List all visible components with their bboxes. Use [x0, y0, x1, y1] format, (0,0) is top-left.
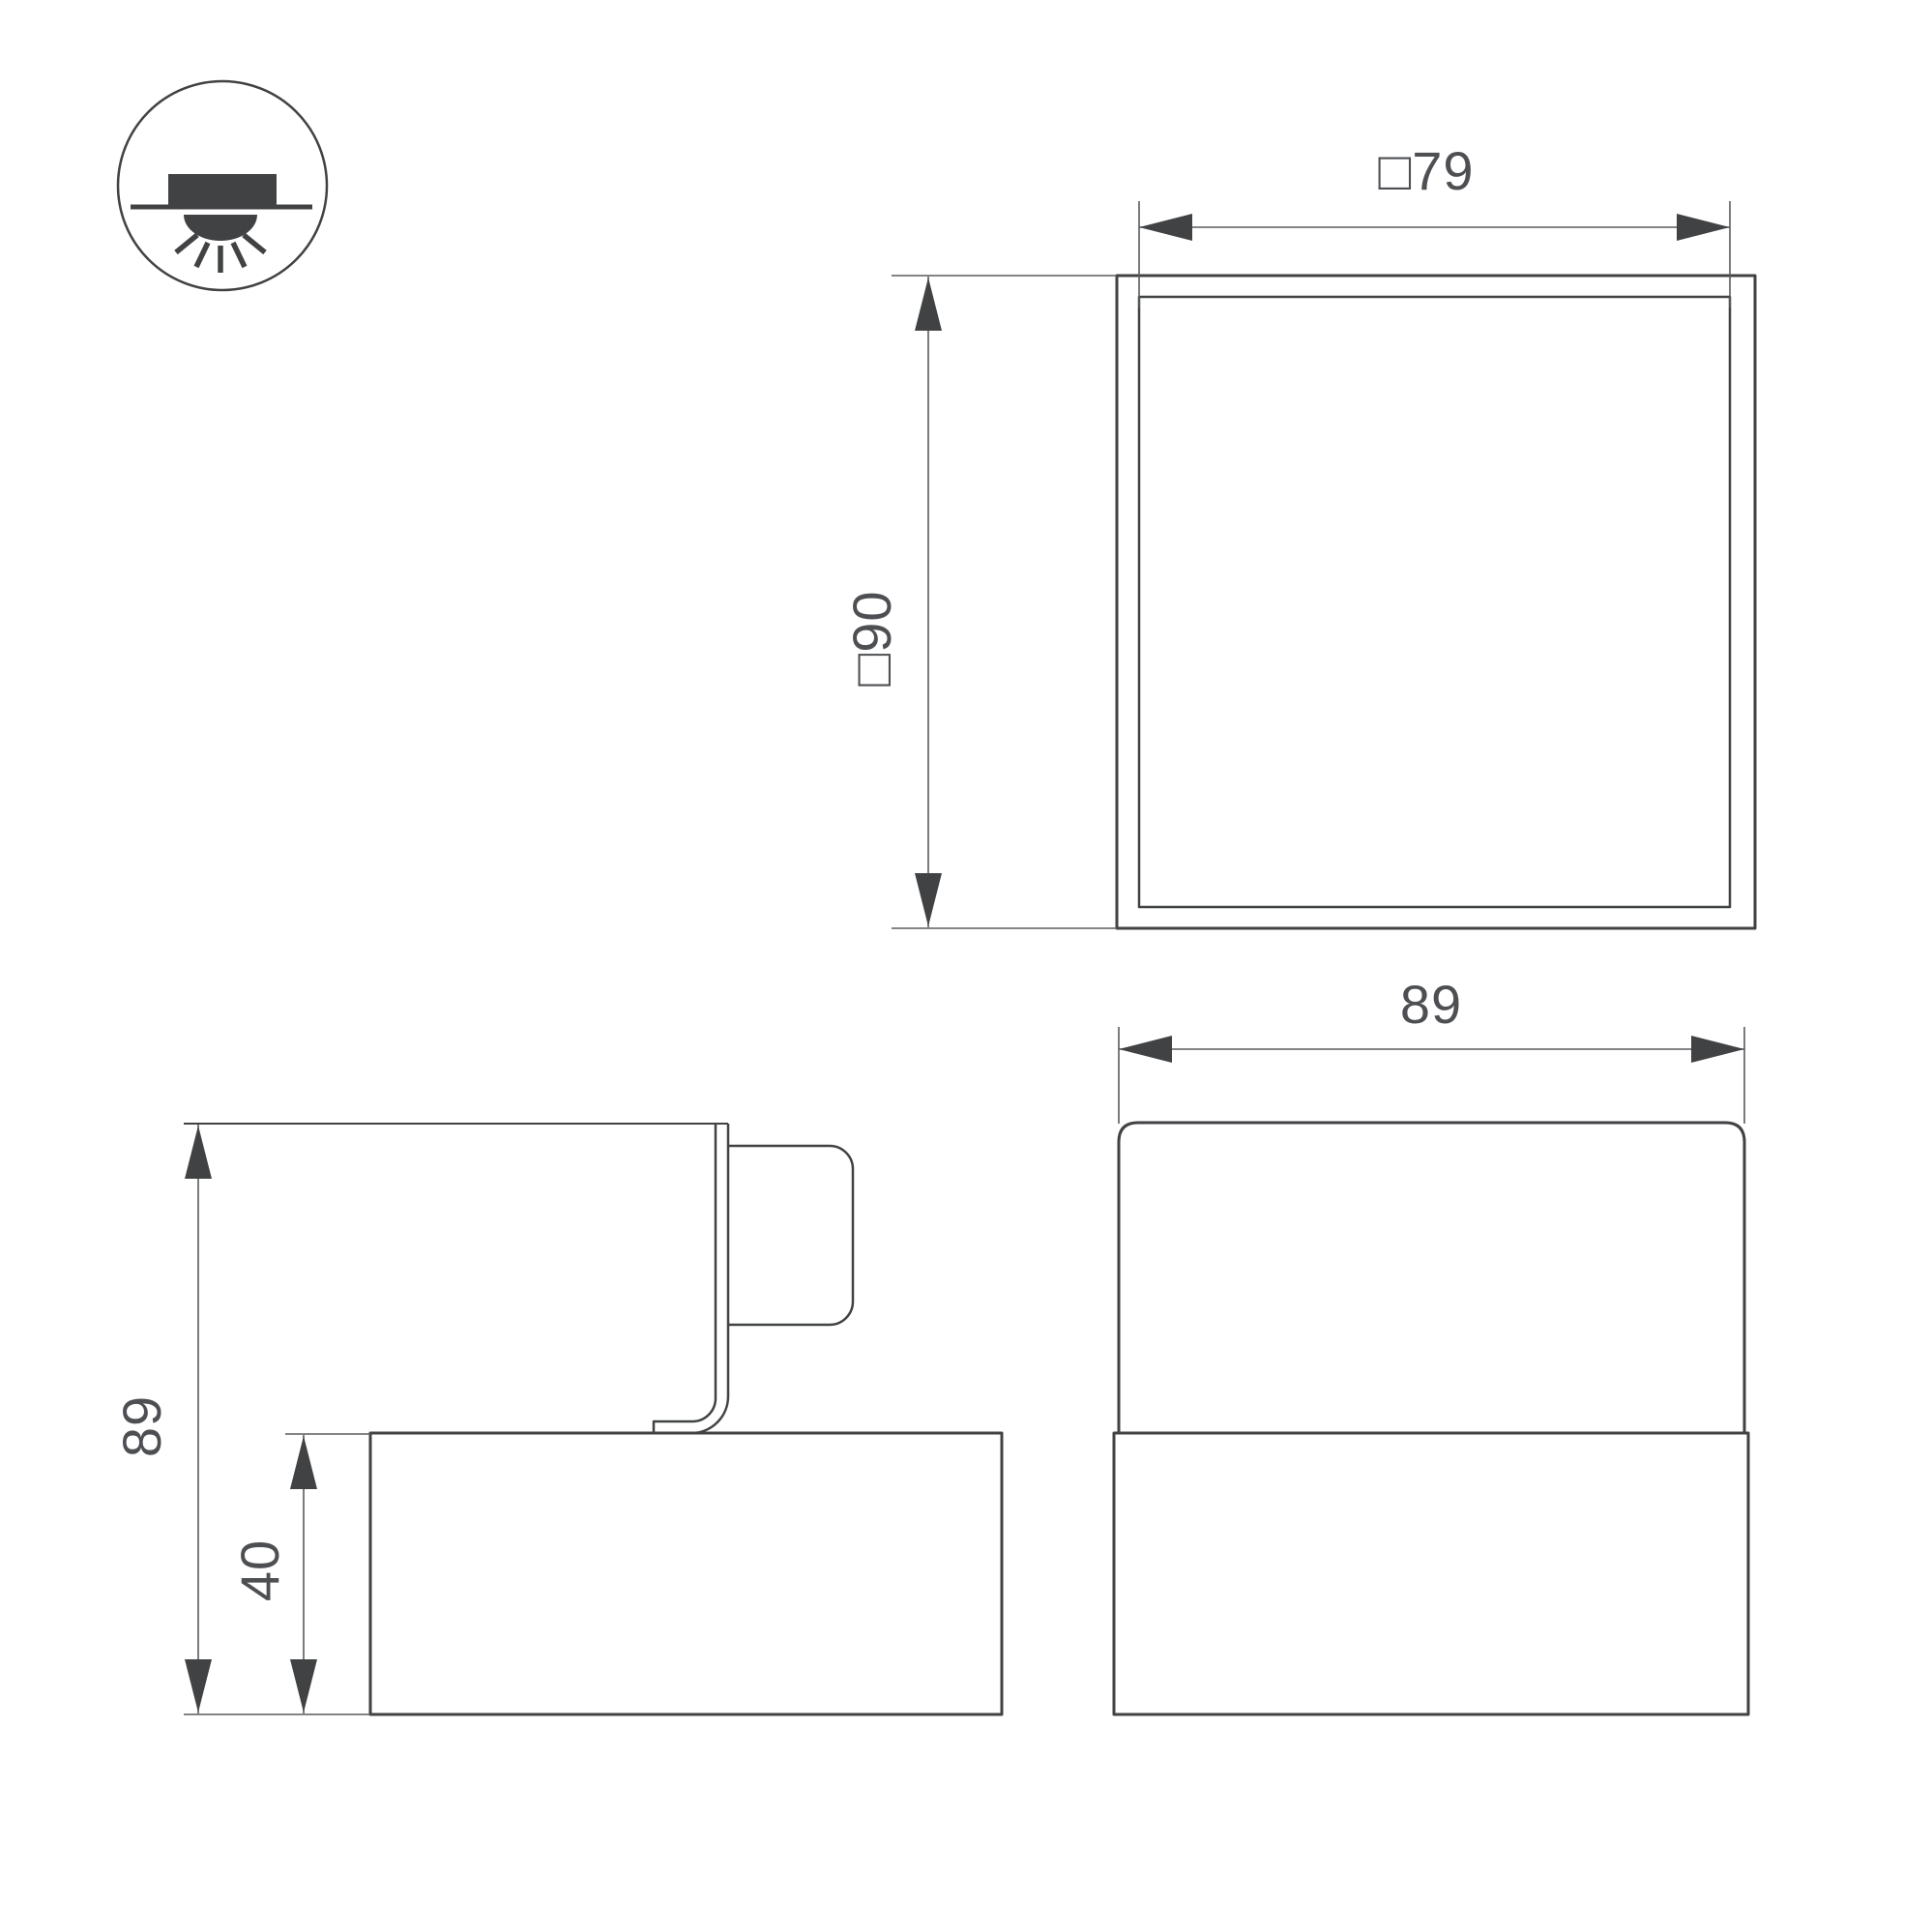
arrowhead-left [1139, 214, 1192, 241]
front-view-base [1114, 1433, 1748, 1714]
icon-light-ray [176, 235, 197, 252]
side-view: 89 40 [111, 1124, 1002, 1714]
arrowhead-top [915, 278, 942, 331]
front-view-head [1119, 1123, 1744, 1433]
icon-light-ray [244, 235, 265, 252]
arrowhead-bottom [915, 873, 942, 926]
front-view: 89 [1114, 974, 1748, 1714]
side-view-base [370, 1433, 1002, 1714]
top-view-inner-square [1139, 297, 1730, 907]
side-view-clip [728, 1146, 853, 1325]
top-view-width-dimension: □79 [1139, 140, 1730, 307]
dimension-label: 89 [1400, 974, 1462, 1035]
arrowhead-bottom [290, 1659, 317, 1712]
icon-light-ray [233, 243, 245, 267]
dimension-label: □79 [1378, 140, 1474, 201]
top-view-outer-square [1117, 276, 1755, 928]
technical-drawing: □79 □90 89 [0, 0, 1932, 1932]
dimension-label: 40 [229, 1539, 290, 1601]
side-view-base-height-dimension: 40 [229, 1434, 370, 1713]
front-view-width-dimension: 89 [1119, 974, 1744, 1124]
arrowhead-right [1691, 1036, 1744, 1063]
side-view-mounting-bracket [654, 1124, 728, 1433]
arrowhead-top [185, 1126, 212, 1179]
dimension-label: □90 [841, 590, 902, 686]
arrowhead-bottom [185, 1659, 212, 1712]
recessed-downlight-icon [118, 81, 327, 290]
side-view-height-dimension: 89 [111, 1125, 370, 1714]
dimension-label: 89 [111, 1395, 172, 1457]
icon-fixture-body [168, 174, 277, 205]
icon-light-ray [196, 243, 208, 267]
top-view-height-dimension: □90 [841, 276, 1117, 928]
dimension-drawing-page: □79 □90 89 [0, 0, 1932, 1932]
arrowhead-left [1119, 1036, 1172, 1063]
arrowhead-top [290, 1436, 317, 1489]
top-view: □79 □90 [841, 140, 1755, 928]
arrowhead-right [1677, 214, 1730, 241]
